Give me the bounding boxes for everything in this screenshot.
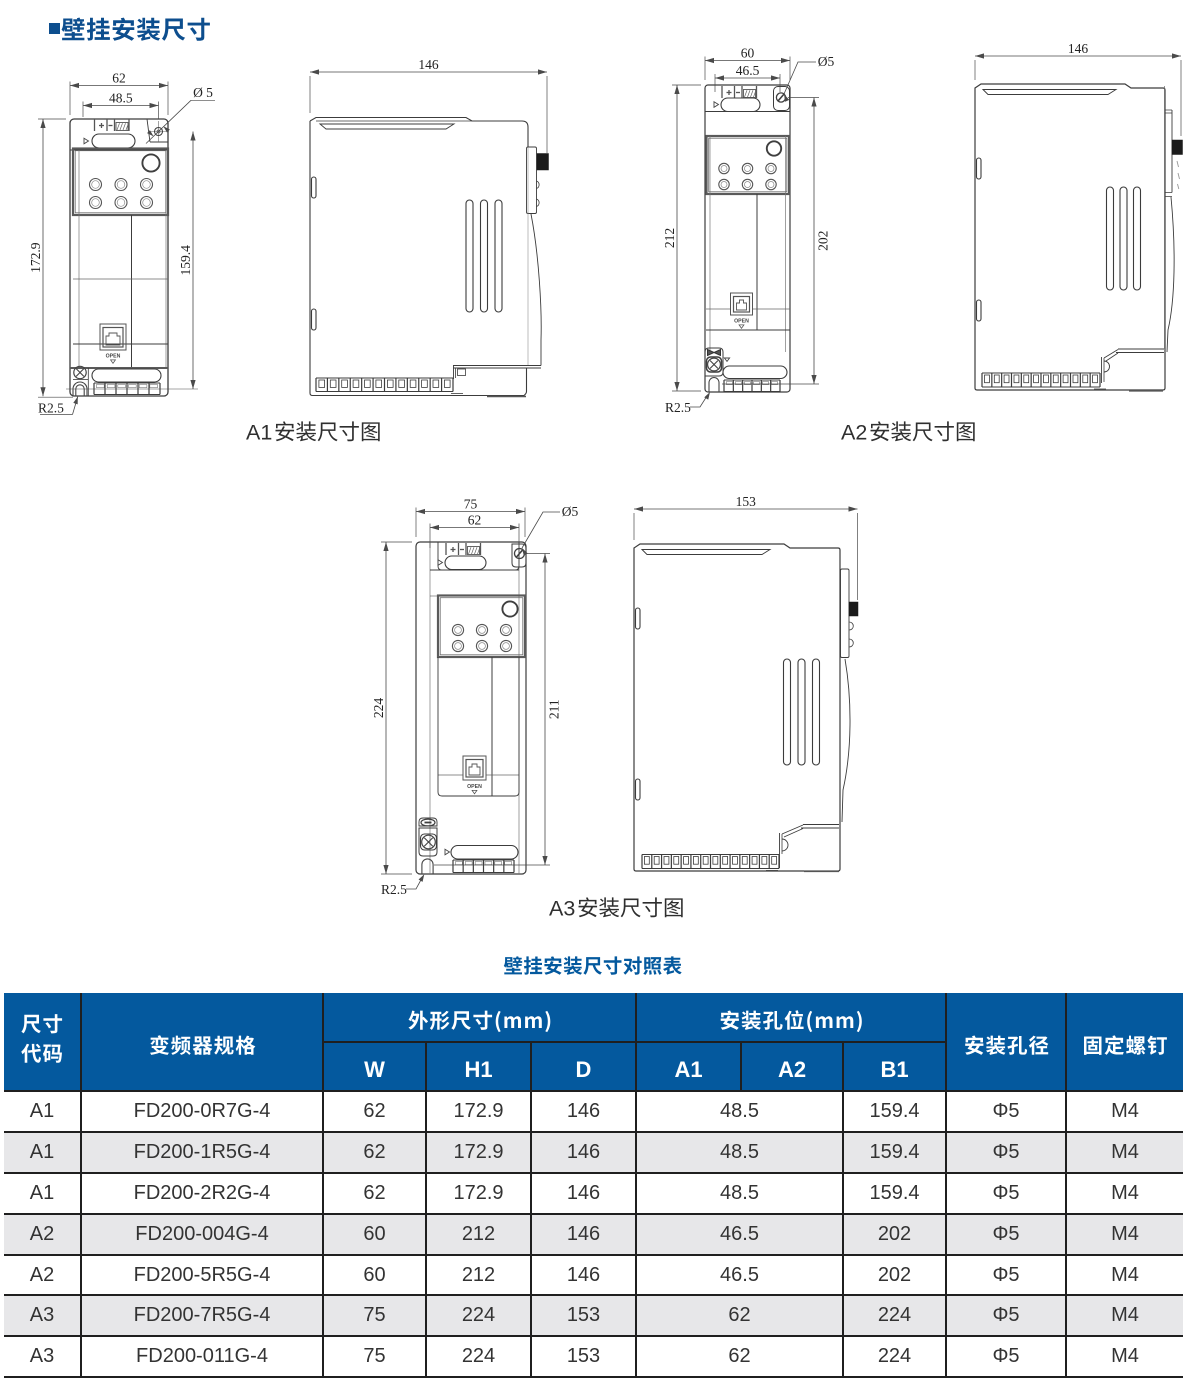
svg-text:60: 60 — [741, 46, 755, 61]
svg-text:202: 202 — [816, 231, 831, 251]
svg-text:48.5: 48.5 — [109, 91, 133, 106]
svg-text:146: 146 — [418, 57, 439, 72]
svg-text:R2.5: R2.5 — [665, 400, 691, 415]
svg-text:153: 153 — [736, 494, 757, 509]
svg-text:Ø5: Ø5 — [562, 504, 579, 519]
svg-text:146: 146 — [1068, 41, 1089, 56]
svg-text:A2: A2 — [841, 421, 867, 445]
svg-text:OPEN: OPEN — [106, 354, 121, 360]
svg-text:211: 211 — [547, 699, 562, 719]
svg-text:A1: A1 — [246, 421, 272, 445]
svg-text:R2.5: R2.5 — [381, 882, 407, 897]
svg-text:Ø5: Ø5 — [818, 54, 835, 69]
svg-text:172.9: 172.9 — [28, 242, 43, 273]
svg-text:159.4: 159.4 — [178, 245, 193, 276]
svg-text:A3: A3 — [549, 897, 575, 921]
svg-text:75: 75 — [464, 497, 478, 512]
svg-text:62: 62 — [112, 71, 126, 86]
svg-text:Ø 5: Ø 5 — [193, 85, 213, 100]
svg-text:224: 224 — [371, 698, 386, 719]
svg-text:OPEN: OPEN — [467, 784, 482, 790]
svg-text:OPEN: OPEN — [734, 319, 749, 325]
svg-text:62: 62 — [468, 513, 482, 528]
svg-text:46.5: 46.5 — [736, 63, 760, 78]
svg-text:212: 212 — [662, 228, 677, 248]
svg-text:R2.5: R2.5 — [38, 401, 64, 416]
